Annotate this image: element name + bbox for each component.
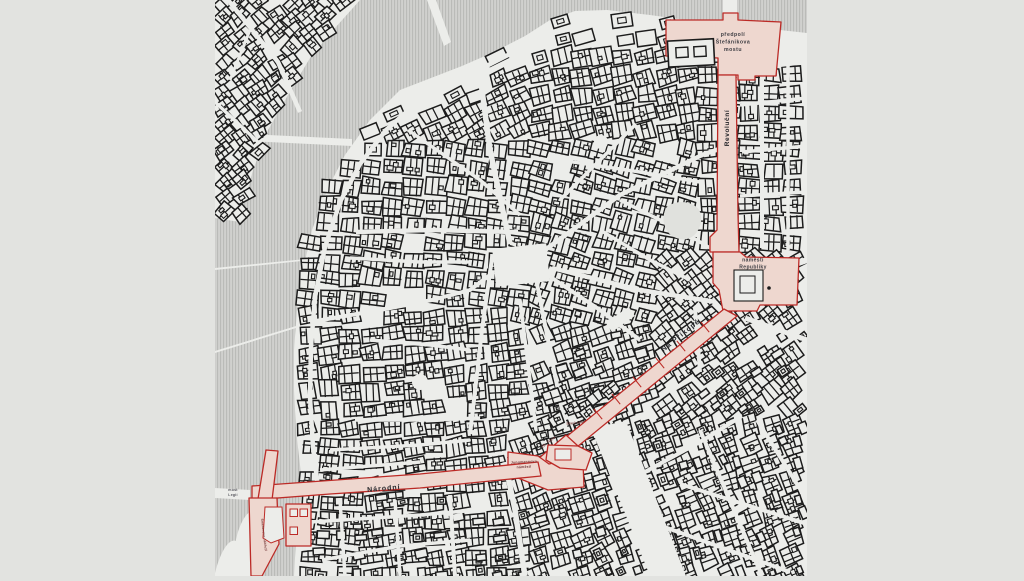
svg-text:předpolí: předpolí	[721, 32, 746, 38]
svg-text:most: most	[228, 488, 238, 492]
svg-text:mostu: mostu	[724, 47, 742, 53]
svg-text:Revoluční: Revoluční	[724, 110, 731, 146]
svg-text:Štefánikova: Štefánikova	[716, 38, 751, 46]
svg-text:náměstí: náměstí	[517, 465, 533, 470]
svg-text:Legií: Legií	[228, 493, 238, 497]
svg-text:Republiky: Republiky	[739, 265, 767, 271]
svg-text:náměstí: náměstí	[742, 258, 764, 264]
